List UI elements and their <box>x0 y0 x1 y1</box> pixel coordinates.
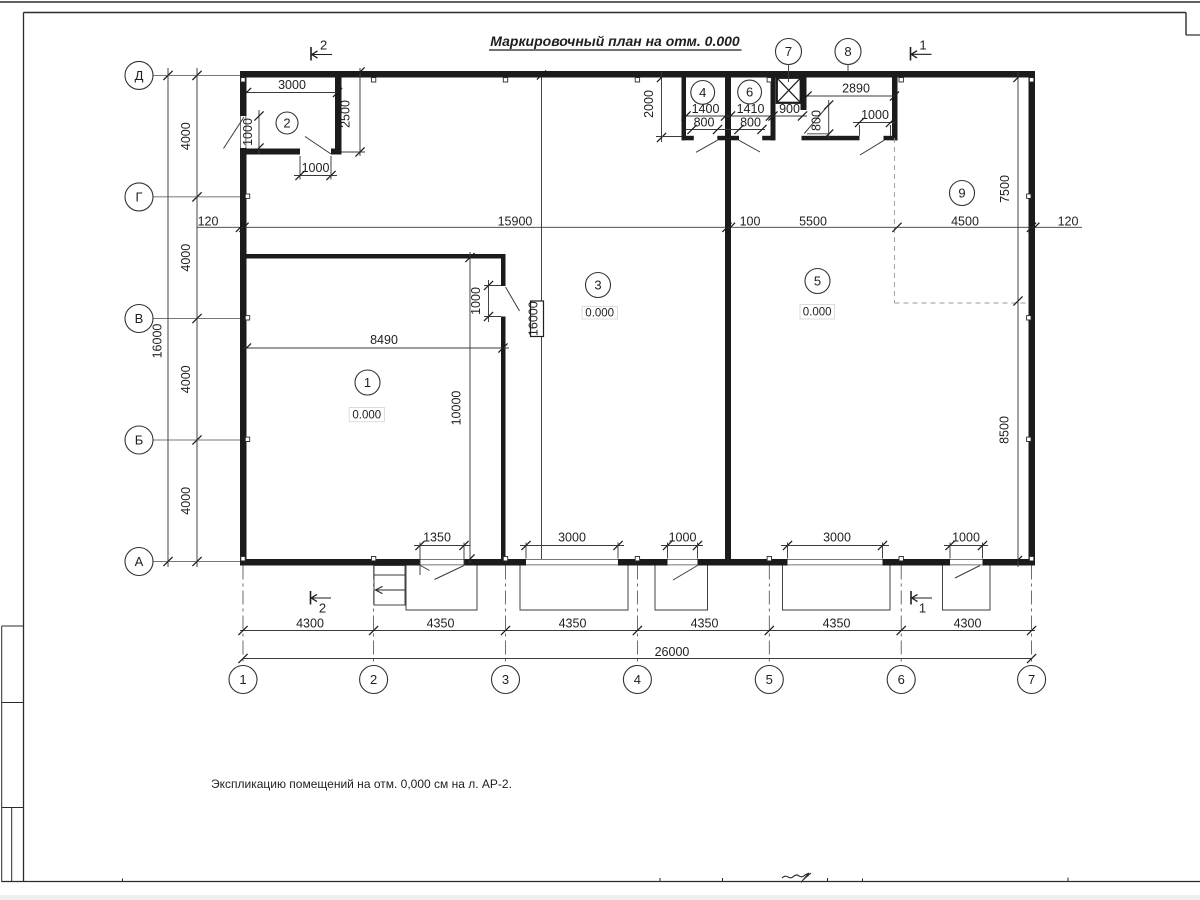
svg-text:2: 2 <box>283 116 290 131</box>
svg-text:Маркировочный план на отм. 0.0: Маркировочный план на отм. 0.000 <box>490 33 740 49</box>
svg-text:8500: 8500 <box>998 416 1012 444</box>
svg-text:5500: 5500 <box>799 214 827 228</box>
svg-text:2: 2 <box>319 601 326 616</box>
svg-text:1000: 1000 <box>241 118 255 146</box>
svg-text:0.000: 0.000 <box>352 409 381 421</box>
svg-text:2: 2 <box>370 672 377 687</box>
svg-text:4350: 4350 <box>691 616 719 630</box>
svg-text:В: В <box>135 311 144 326</box>
svg-text:3: 3 <box>502 672 509 687</box>
svg-text:Экспликацию помещений на отм.: Экспликацию помещений на отм. 0,000 см н… <box>211 777 512 791</box>
svg-text:6: 6 <box>898 672 905 687</box>
svg-text:1000: 1000 <box>669 531 697 545</box>
svg-text:7500: 7500 <box>998 175 1012 203</box>
svg-text:4350: 4350 <box>823 616 851 630</box>
svg-text:2000: 2000 <box>642 90 656 118</box>
svg-text:4000: 4000 <box>179 244 193 272</box>
svg-text:6: 6 <box>746 85 753 100</box>
svg-text:4000: 4000 <box>179 122 193 150</box>
svg-text:120: 120 <box>198 214 219 228</box>
svg-text:3000: 3000 <box>558 531 586 545</box>
svg-text:4000: 4000 <box>179 487 193 515</box>
svg-text:4500: 4500 <box>951 214 979 228</box>
svg-text:800: 800 <box>810 110 824 131</box>
svg-text:8: 8 <box>844 44 851 59</box>
svg-text:8490: 8490 <box>370 333 398 347</box>
svg-text:Б: Б <box>135 433 144 448</box>
svg-text:5: 5 <box>766 672 773 687</box>
svg-text:15900: 15900 <box>498 214 533 228</box>
svg-text:9: 9 <box>958 186 965 201</box>
svg-text:3000: 3000 <box>278 78 306 92</box>
svg-text:800: 800 <box>740 116 761 130</box>
svg-text:4: 4 <box>634 672 641 687</box>
svg-text:100: 100 <box>740 214 761 228</box>
svg-text:1000: 1000 <box>861 108 889 122</box>
svg-text:2890: 2890 <box>842 82 870 96</box>
svg-text:1000: 1000 <box>469 287 483 315</box>
svg-text:0.000: 0.000 <box>803 307 832 319</box>
svg-text:120: 120 <box>1058 214 1079 228</box>
svg-text:Г: Г <box>135 190 142 205</box>
svg-text:2: 2 <box>320 38 327 53</box>
svg-text:0.000: 0.000 <box>585 307 614 319</box>
svg-text:3: 3 <box>594 278 601 293</box>
svg-text:5: 5 <box>814 274 821 289</box>
svg-text:1350: 1350 <box>423 531 451 545</box>
svg-text:4300: 4300 <box>954 616 982 630</box>
svg-text:4: 4 <box>699 85 706 100</box>
svg-text:3000: 3000 <box>823 531 851 545</box>
svg-text:1000: 1000 <box>952 531 980 545</box>
svg-text:4350: 4350 <box>427 616 455 630</box>
svg-text:1: 1 <box>919 601 926 616</box>
svg-text:1: 1 <box>919 38 926 53</box>
svg-text:4300: 4300 <box>296 616 324 630</box>
svg-text:10000: 10000 <box>450 391 464 426</box>
svg-text:16000: 16000 <box>527 301 541 336</box>
svg-text:800: 800 <box>694 116 715 130</box>
svg-text:Д: Д <box>135 68 144 83</box>
svg-text:1000: 1000 <box>302 161 330 175</box>
svg-text:1: 1 <box>364 375 371 390</box>
svg-text:900: 900 <box>779 102 800 116</box>
svg-text:16000: 16000 <box>151 324 165 359</box>
svg-text:4350: 4350 <box>559 616 587 630</box>
svg-text:2500: 2500 <box>339 100 353 128</box>
svg-text:26000: 26000 <box>655 645 690 659</box>
svg-text:А: А <box>135 554 144 569</box>
svg-text:7: 7 <box>785 44 792 59</box>
svg-text:7: 7 <box>1028 672 1035 687</box>
svg-text:1: 1 <box>239 672 246 687</box>
svg-text:4000: 4000 <box>179 365 193 393</box>
